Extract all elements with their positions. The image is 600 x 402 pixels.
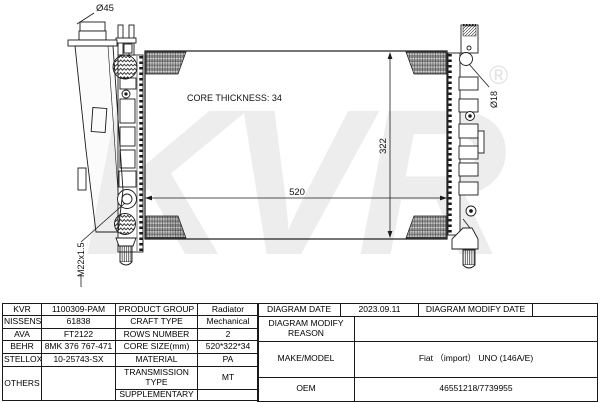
table-row: DIAGRAM DATE 2023.09.11 DIAGRAM MODIFY D… bbox=[258, 304, 598, 317]
prop-label-cell: CORE SIZE(mm) bbox=[116, 341, 198, 354]
registered-mark: ® bbox=[489, 60, 508, 90]
diagram-date-label: DIAGRAM DATE bbox=[258, 304, 341, 317]
part-number-cell: 8MK 376 767-471 bbox=[42, 341, 116, 354]
table-row: STELLOX 10-25743-SX MATERIAL PA bbox=[3, 353, 259, 366]
table-row: OEM 46551218/7739955 bbox=[258, 377, 598, 401]
label-width-dim: 520 bbox=[289, 187, 305, 198]
prop-label-cell: SUPPLEMENTARY bbox=[116, 390, 198, 401]
prop-label-cell: PRODUCT GROUP bbox=[116, 304, 198, 316]
watermark-text: KVR bbox=[84, 67, 506, 299]
prop-value-cell: 2 bbox=[198, 328, 259, 340]
prop-value-cell: PA bbox=[198, 353, 259, 366]
table-row: OTHERS TRANSMISSION TYPE MT bbox=[3, 366, 259, 390]
label-height-dim: 322 bbox=[378, 138, 389, 154]
brand-cell: STELLOX bbox=[3, 353, 42, 366]
brand-cell: OTHERS bbox=[3, 366, 42, 401]
part-number-cell: 10-25743-SX bbox=[42, 353, 116, 366]
part-number-cell: FT2122 bbox=[42, 328, 116, 340]
diagram-date-value: 2023.09.11 bbox=[341, 304, 419, 317]
table-row: DIAGRAM MODIFY REASON bbox=[258, 317, 598, 342]
prop-label-cell: MATERIAL bbox=[116, 353, 198, 366]
modify-reason-value bbox=[355, 317, 598, 342]
drain-stub bbox=[120, 246, 132, 262]
label-core-thickness: CORE THICKNESS: 34 bbox=[187, 93, 282, 103]
prop-value-cell: Radiator bbox=[198, 304, 259, 316]
table-row: BEHR 8MK 376 767-471 CORE SIZE(mm) 520*3… bbox=[3, 341, 259, 354]
prop-value-cell bbox=[198, 390, 259, 401]
table-row: KVR 1100309-PAM PRODUCT GROUP Radiator bbox=[3, 304, 259, 316]
modify-date-value bbox=[533, 304, 598, 317]
make-model-value: Fiat （import） UNO (146A/E) bbox=[355, 342, 598, 378]
diagram-info-table: DIAGRAM DATE 2023.09.11 DIAGRAM MODIFY D… bbox=[257, 303, 598, 402]
watermark: KVR ® bbox=[84, 60, 508, 299]
make-model-label: MAKE/MODEL bbox=[258, 342, 355, 378]
part-number-cell bbox=[42, 366, 116, 401]
table-row: AVA FT2122 ROWS NUMBER 2 bbox=[3, 328, 259, 340]
part-number-cell: 61838 bbox=[42, 316, 116, 328]
brand-cell: BEHR bbox=[3, 341, 42, 354]
right-top-bracket bbox=[460, 25, 479, 66]
label-outlet-diameter: Ø18 bbox=[489, 91, 499, 108]
oem-value: 46551218/7739955 bbox=[355, 377, 598, 401]
outlet-port-right bbox=[460, 53, 473, 66]
filler-neck bbox=[80, 22, 105, 31]
prop-value-cell: 520*322*34 bbox=[198, 341, 259, 354]
label-drain-thread: M22x1.5 bbox=[76, 242, 86, 277]
inlet-port bbox=[113, 55, 137, 79]
radiator-drawing: KVR ® bbox=[0, 0, 600, 303]
table-row: NISSENS 61838 CRAFT TYPE Mechanical bbox=[3, 316, 259, 328]
modify-date-label: DIAGRAM MODIFY DATE bbox=[419, 304, 533, 317]
modify-reason-label: DIAGRAM MODIFY REASON bbox=[258, 317, 355, 342]
prop-label-cell: ROWS NUMBER bbox=[116, 328, 198, 340]
brand-cell: AVA bbox=[3, 328, 42, 340]
brand-cell: NISSENS bbox=[3, 316, 42, 328]
left-top-bracket bbox=[116, 25, 136, 55]
prop-value-cell: Mechanical bbox=[198, 316, 259, 328]
prop-label-cell: TRANSMISSION TYPE bbox=[116, 366, 198, 390]
oem-label: OEM bbox=[258, 377, 355, 401]
brand-cell: KVR bbox=[3, 304, 42, 316]
prop-label-cell: CRAFT TYPE bbox=[116, 316, 198, 328]
part-number-cell: 1100309-PAM bbox=[42, 304, 116, 316]
cross-reference-table: KVR 1100309-PAM PRODUCT GROUP Radiator N… bbox=[2, 303, 259, 401]
catalog-page: KVR ® bbox=[0, 0, 600, 402]
table-row: MAKE/MODEL Fiat （import） UNO (146A/E) bbox=[258, 342, 598, 378]
label-filler-diameter: Ø45 bbox=[96, 3, 114, 14]
prop-value-cell: MT bbox=[198, 366, 259, 390]
